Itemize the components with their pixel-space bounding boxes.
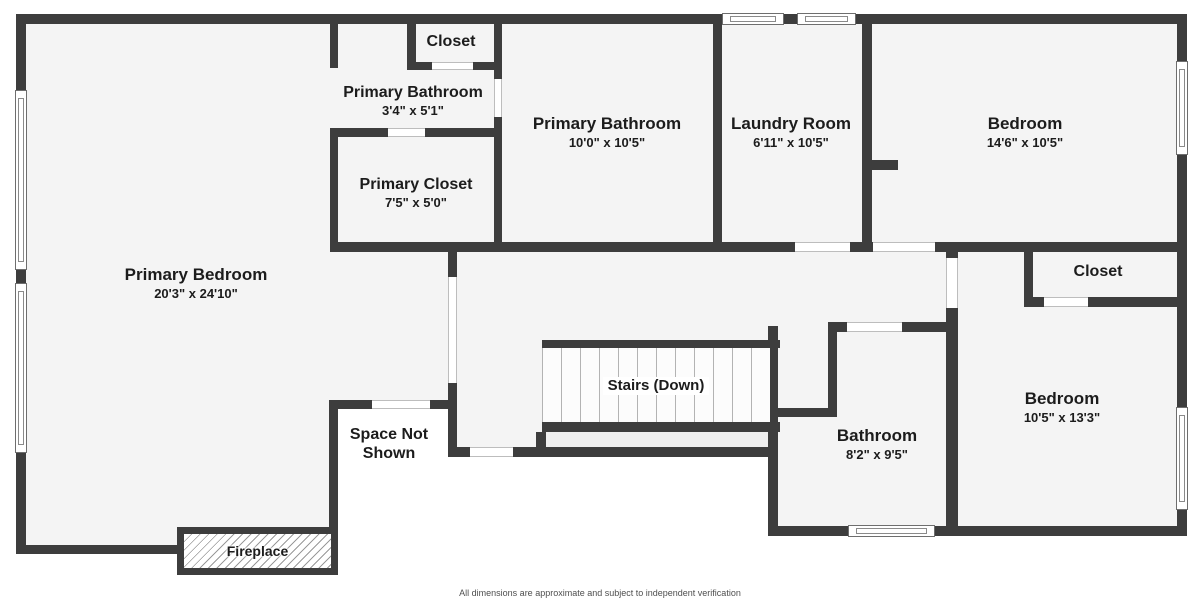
room-name: Primary Bathroom xyxy=(333,83,493,102)
door-opening-bathroom xyxy=(847,322,902,332)
wall-bedroom-stub xyxy=(872,160,898,170)
wall-outer-top xyxy=(16,14,1187,24)
room-name: Primary Bedroom xyxy=(96,264,296,285)
room-label-right-closet: Closet xyxy=(1048,262,1148,281)
wall-main-divider xyxy=(330,242,1187,252)
window-left-upper xyxy=(15,90,27,270)
wall-stairs-strip-cap xyxy=(536,432,546,448)
room-label-bedroom-top: Bedroom 14'6" x 10'5" xyxy=(925,113,1125,153)
room-name: Laundry Room xyxy=(691,113,891,134)
room-dims: 10'0" x 10'5" xyxy=(507,134,707,153)
room-name: Bedroom xyxy=(962,388,1162,409)
door-opening-hall-bottom xyxy=(470,447,513,457)
wall-right-closet-left xyxy=(1024,252,1033,307)
room-label-bedroom-bottom: Bedroom 10'5" x 13'3" xyxy=(962,388,1162,428)
window-laundry-1 xyxy=(722,13,784,25)
stairs-lower-flight xyxy=(546,432,768,447)
room-label-stairs: Stairs (Down) xyxy=(542,377,770,395)
wall-bathroom-inner xyxy=(768,408,837,417)
room-dims: 8'2" x 9'5" xyxy=(777,446,977,465)
wall-bedroom-bath-stub xyxy=(330,14,338,68)
door-opening-right-closet xyxy=(1044,297,1088,307)
room-name-line2: Shown xyxy=(329,444,449,463)
room-label-primary-bathroom-small: Primary Bathroom 3'4" x 5'1" xyxy=(333,83,493,121)
room-dims: 10'5" x 13'3" xyxy=(962,409,1162,428)
disclaimer-text: All dimensions are approximate and subje… xyxy=(0,588,1200,598)
door-opening-laundry xyxy=(795,242,850,252)
door-opening-primary-bedroom-hall xyxy=(448,277,457,383)
fireplace-hatch: Fireplace xyxy=(184,534,331,568)
door-opening-top-closet xyxy=(432,62,473,70)
room-label-primary-bathroom: Primary Bathroom 10'0" x 10'5" xyxy=(507,113,707,153)
wall-stairs-top xyxy=(542,340,780,348)
stairs-label-text: Stairs (Down) xyxy=(603,377,710,395)
floor xyxy=(768,252,958,536)
room-name: Primary Bathroom xyxy=(507,113,707,134)
room-dims: 20'3" x 24'10" xyxy=(96,285,296,304)
door-opening-bedroom-top xyxy=(873,242,935,252)
room-name: Bedroom xyxy=(925,113,1125,134)
room-label-space-not-shown: Space Not Shown xyxy=(329,425,449,463)
room-name: Primary Closet xyxy=(336,175,496,194)
room-name: Bathroom xyxy=(777,425,977,446)
door-opening-primary-bathrooms xyxy=(494,79,502,117)
room-dims: 14'6" x 10'5" xyxy=(925,134,1125,153)
wall-bottom-right-block xyxy=(768,526,1187,536)
room-label-bathroom: Bathroom 8'2" x 9'5" xyxy=(777,425,977,465)
wall-primary-bedroom-bottom xyxy=(16,545,183,554)
window-left-lower xyxy=(15,283,27,453)
room-name: Closet xyxy=(1048,262,1148,281)
wall-stairs-mid xyxy=(542,422,780,432)
wall-bathroom-stub xyxy=(828,322,837,414)
room-dims: 7'5" x 5'0" xyxy=(336,194,496,213)
floor xyxy=(338,252,448,409)
fireplace-label: Fireplace xyxy=(227,543,288,559)
room-label-laundry-room: Laundry Room 6'11" x 10'5" xyxy=(691,113,891,153)
door-opening-bedroom-bottom xyxy=(946,258,958,308)
window-right-upper xyxy=(1176,61,1188,155)
window-bathroom xyxy=(848,525,935,537)
door-opening-space-not-shown xyxy=(372,400,430,409)
door-opening-primary-closet xyxy=(388,128,425,137)
room-label-primary-closet: Primary Closet 7'5" x 5'0" xyxy=(336,175,496,213)
floor-plan: Stairs (Down) Fireplace Primary Bedroom … xyxy=(0,0,1200,605)
room-name-line1: Space Not xyxy=(329,425,449,444)
room-label-primary-bedroom: Primary Bedroom 20'3" x 24'10" xyxy=(96,264,296,304)
room-dims: 6'11" x 10'5" xyxy=(691,134,891,153)
window-right-lower xyxy=(1176,407,1188,510)
room-dims: 3'4" x 5'1" xyxy=(333,102,493,121)
window-laundry-2 xyxy=(797,13,856,25)
room-name: Closet xyxy=(411,32,491,51)
room-label-top-closet: Closet xyxy=(411,32,491,51)
